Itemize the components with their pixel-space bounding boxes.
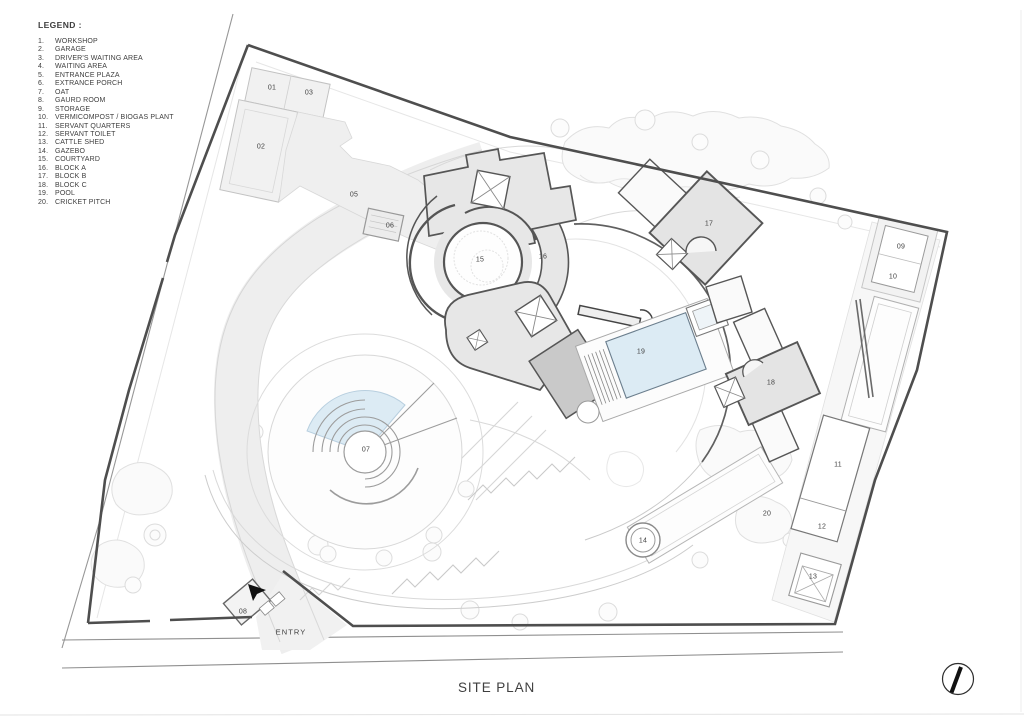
legend-item-label: DRIVER'S WAITING AREA (55, 55, 143, 63)
legend-item: 1.WORKSHOP (38, 38, 238, 46)
legend-item-label: GARAGE (55, 46, 86, 54)
legend-item-label: VERMICOMPOST / BIOGAS PLANT (55, 114, 174, 122)
legend-item-number: 14. (38, 148, 55, 156)
legend-item: 11.SERVANT QUARTERS (38, 123, 238, 131)
legend-item-number: 3. (38, 55, 55, 63)
legend-item-number: 7. (38, 89, 55, 97)
legend-item-number: 12. (38, 131, 55, 139)
legend-item: 19.POOL (38, 190, 238, 198)
legend-item: 20.CRICKET PITCH (38, 199, 238, 207)
legend-item-number: 19. (38, 190, 55, 198)
skylight-box (471, 170, 510, 209)
legend-item-number: 16. (38, 165, 55, 173)
legend-item-label: BLOCK C (55, 182, 87, 190)
service-strip (772, 216, 940, 622)
legend-item-label: WAITING AREA (55, 63, 107, 71)
legend-item-number: 17. (38, 173, 55, 181)
legend-item-label: GAZEBO (55, 148, 85, 156)
legend-item: 8.GAURD ROOM (38, 97, 238, 105)
legend-item-label: GAURD ROOM (55, 97, 106, 105)
block-a (407, 149, 615, 418)
legend-title: LEGEND : (38, 20, 238, 30)
legend-item-label: STORAGE (55, 106, 90, 114)
legend-item: 17.BLOCK B (38, 173, 238, 181)
legend-item-number: 4. (38, 63, 55, 71)
legend-item-label: COURTYARD (55, 156, 100, 164)
legend-item-label: OAT (55, 89, 69, 97)
legend-item: 3.DRIVER'S WAITING AREA (38, 55, 238, 63)
north-arrow-icon (943, 664, 974, 695)
gazebo (626, 523, 660, 557)
site-plan-sheet: LEGEND : 1.WORKSHOP2.GARAGE3.DRIVER'S WA… (0, 0, 1024, 724)
legend-item: 14.GAZEBO (38, 148, 238, 156)
legend-item: 13.CATTLE SHED (38, 139, 238, 147)
legend-item: 16.BLOCK A (38, 165, 238, 173)
legend-item-number: 2. (38, 46, 55, 54)
legend-item-number: 8. (38, 97, 55, 105)
legend-item-label: BLOCK B (55, 173, 86, 181)
legend-item-label: ENTRANCE PLAZA (55, 72, 120, 80)
legend-item-label: EXTRANCE PORCH (55, 80, 122, 88)
oat (268, 355, 474, 566)
legend-item-number: 9. (38, 106, 55, 114)
legend-item-label: WORKSHOP (55, 38, 98, 46)
legend-item: 12.SERVANT TOILET (38, 131, 238, 139)
legend-item-number: 5. (38, 72, 55, 80)
legend-item-number: 13. (38, 139, 55, 147)
legend: LEGEND : 1.WORKSHOP2.GARAGE3.DRIVER'S WA… (38, 20, 238, 207)
legend-item: 5.ENTRANCE PLAZA (38, 72, 238, 80)
legend-item: 10.VERMICOMPOST / BIOGAS PLANT (38, 114, 238, 122)
legend-item-label: CATTLE SHED (55, 139, 104, 147)
legend-item-label: POOL (55, 190, 75, 198)
legend-item-number: 11. (38, 123, 55, 131)
legend-item-label: SERVANT TOILET (55, 131, 116, 139)
legend-item: 18.BLOCK C (38, 182, 238, 190)
legend-item-number: 1. (38, 38, 55, 46)
legend-item: 4.WAITING AREA (38, 63, 238, 71)
legend-item-number: 6. (38, 80, 55, 88)
entry-label: ENTRY (276, 628, 307, 637)
legend-item-label: CRICKET PITCH (55, 199, 111, 207)
legend-item-label: SERVANT QUARTERS (55, 123, 130, 131)
legend-item-label: BLOCK A (55, 165, 86, 173)
legend-item: 15.COURTYARD (38, 156, 238, 164)
legend-item: 6.EXTRANCE PORCH (38, 80, 238, 88)
sheet-title: SITE PLAN (458, 680, 535, 695)
walkway-bridge (578, 305, 641, 327)
legend-item-number: 20. (38, 199, 55, 207)
oat-stage (344, 431, 386, 473)
legend-item: 2.GARAGE (38, 46, 238, 54)
legend-item-number: 10. (38, 114, 55, 122)
legend-item-number: 18. (38, 182, 55, 190)
legend-list: 1.WORKSHOP2.GARAGE3.DRIVER'S WAITING ARE… (38, 38, 238, 207)
legend-item: 9.STORAGE (38, 106, 238, 114)
legend-item-number: 15. (38, 156, 55, 164)
legend-item: 7.OAT (38, 89, 238, 97)
